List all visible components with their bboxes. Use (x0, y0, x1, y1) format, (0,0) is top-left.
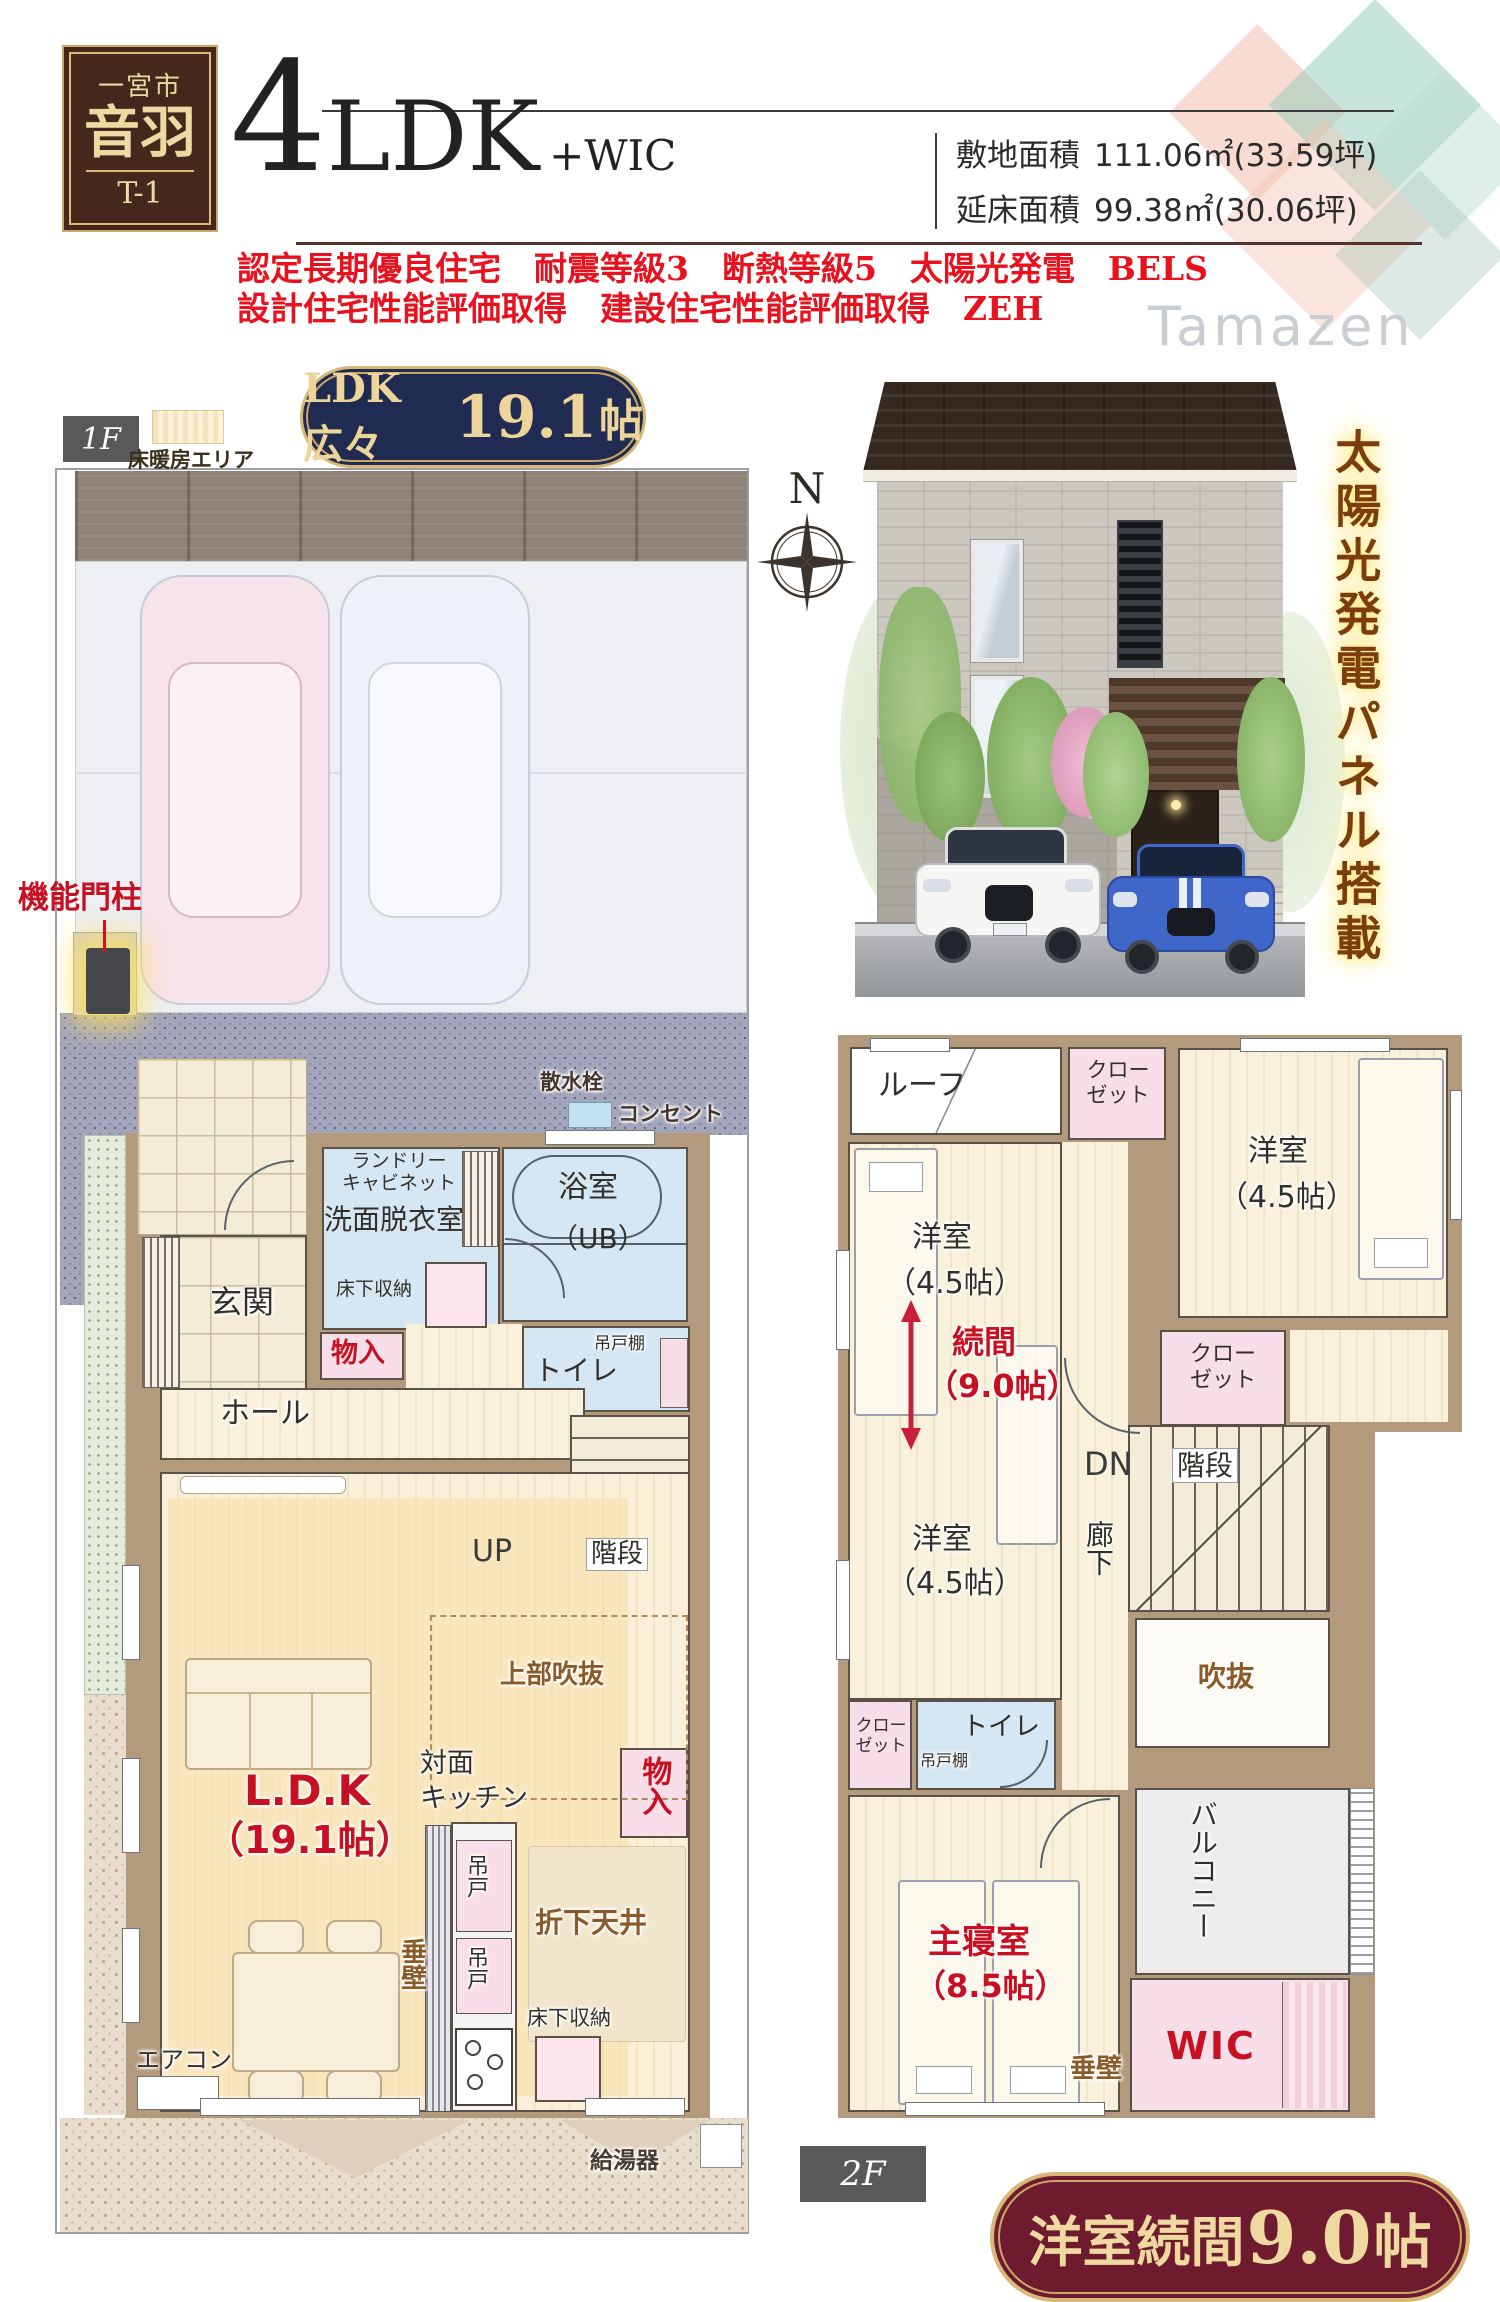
bed-pillow (1374, 1238, 1428, 1268)
plan-rest: LDK (327, 89, 539, 185)
hanging-door-label: 吊戸 (462, 1854, 488, 1898)
features-line2: 設計住宅性能評価取得 建設住宅性能評価取得 ZEH (237, 290, 1043, 329)
window-mark (836, 1560, 850, 1660)
dining-chair (326, 1920, 382, 1954)
garden-tree (1083, 712, 1149, 837)
location-badge: 一宮市 音羽 T-1 (62, 45, 218, 232)
window-left-upper (971, 540, 1023, 662)
laundry-cabinet-unit (462, 1151, 498, 1247)
exterior-render (855, 382, 1305, 997)
window-mark (1450, 1090, 1462, 1220)
ldk-size-label: （19.1帖） (206, 1818, 414, 1863)
gate-post (86, 948, 130, 1014)
roof-label: ルーフ (878, 1068, 966, 1103)
bedroom-ne-alcove (1290, 1330, 1448, 1422)
balcony-2f (1135, 1788, 1350, 1975)
compass-rose-icon (757, 512, 857, 612)
car-blue-hatchback (1107, 844, 1275, 976)
floor-area-row: 延床面積 99.38㎡(30.06坪) (956, 185, 1377, 230)
laundry-cabinet-label: ランドリー キャビネット (338, 1150, 460, 1195)
window-mark (122, 1758, 140, 1853)
water-heater-unit (700, 2124, 742, 2168)
stove (455, 2028, 513, 2106)
floor-heating-swatch (152, 410, 224, 444)
ldk-badge-unit: 帖 (599, 385, 643, 449)
bed-pillow (869, 1162, 923, 1192)
house-roof (863, 382, 1297, 472)
toilet-2f-label: トイレ (962, 1712, 1040, 1743)
stairs-1f-label: 階段 (586, 1538, 648, 1571)
window-mark (122, 1928, 140, 2023)
bath-ub-label: （UB） (550, 1222, 646, 1255)
plan-number: 4 (230, 42, 327, 194)
toilet-2f-shelf-label: 吊戸棚 (920, 1752, 968, 1771)
window-mark (870, 1038, 950, 1052)
site-area-row: 敷地面積 111.06㎡(33.59坪) (956, 130, 1377, 175)
area-divider (935, 133, 937, 229)
location-unit: T-1 (117, 176, 162, 211)
location-city: 一宮市 (98, 66, 182, 103)
zokuma-badge-prefix: 洋室続間 (1028, 2198, 1244, 2277)
car-outline-blue (340, 575, 530, 1005)
window-mark (200, 2098, 420, 2116)
outlet-swatch (568, 1102, 612, 1128)
wic-hanger-stripes (1282, 1982, 1346, 2108)
dining-chair (248, 1920, 304, 1954)
suv-headlight (923, 879, 951, 892)
slat-window (1117, 520, 1163, 668)
bed-pillow (1010, 2066, 1066, 2094)
sofa (185, 1658, 372, 1770)
toilet-hanging-shelf-label: 吊戸棚 (594, 1334, 645, 1354)
void-2f-label: 吹抜 (1198, 1660, 1254, 1693)
window-mark (585, 2098, 685, 2116)
window-mark (1240, 1038, 1390, 1052)
plan-suffix: +WIC (549, 135, 676, 177)
up-label: UP (472, 1534, 512, 1569)
underfloor-storage2-hatch (535, 2036, 601, 2102)
suv-wheel (1045, 927, 1081, 963)
suv-grill (985, 885, 1033, 921)
gate-post-leader (103, 920, 106, 952)
outlet-label: コンセント (618, 1102, 723, 1127)
ldk-label: L.D.K (244, 1766, 370, 1816)
floor-heating-label: 床暖房エリア (128, 448, 254, 473)
storage-1f-label: 物入 (331, 1338, 385, 1370)
zokuma-badge-value: 9.0 (1246, 2195, 1371, 2280)
bedroom-w-size: （4.5帖） (886, 1266, 1024, 1301)
compass-north-label: N (752, 468, 862, 510)
sofa-seat-line (249, 1692, 251, 1770)
storage2-1f-label: 物入 (636, 1756, 671, 1816)
bed (1358, 1058, 1444, 1280)
aircon-label: エアコン (136, 2046, 232, 2074)
stove-burner (465, 2040, 481, 2056)
underfloor-storage2-label: 床下収納 (527, 2006, 611, 2031)
void-above-label: 上部吹抜 (500, 1660, 604, 1691)
stairs-2f-label: 階段 (1172, 1448, 1238, 1483)
underfloor-storage-label: 床下収納 (336, 1278, 412, 1300)
side-ground-strip (84, 1695, 126, 2115)
closet-label: クロー ゼット (1180, 1342, 1266, 1394)
zokuma-badge-unit: 帖 (1374, 2195, 1432, 2279)
window-mark (905, 2102, 1105, 2116)
window-mark (122, 1565, 140, 1660)
brand-logo-text: Tamazen (1148, 295, 1415, 359)
wic-label: WIC (1166, 2024, 1256, 2069)
kitchen-label: 対面 キッチン (420, 1746, 528, 1816)
site-area-value: 111.06㎡(33.59坪) (1094, 130, 1377, 175)
compass: N (752, 468, 862, 623)
tarekabe-2f-label: 垂壁 (1070, 2054, 1122, 2085)
dn-label: DN (1084, 1446, 1133, 1484)
features-line1: 認定長期優良住宅 耐震等級3 断熱等級5 太陽光発電 BELS (237, 250, 1208, 289)
garden-tree (915, 712, 985, 842)
hall-label: ホール (220, 1396, 310, 1431)
location-badge-inner: 一宮市 音羽 T-1 (69, 52, 211, 225)
hatch-headlight (1245, 892, 1269, 907)
washroom-label: 洗面脱衣室 (324, 1203, 464, 1236)
floor-tag-2f-text: 2F (840, 2154, 885, 2194)
shoe-cabinet (142, 1237, 180, 1388)
bedroom-ne-size: （4.5帖） (1218, 1180, 1356, 1215)
underfloor-storage-hatch (425, 1262, 487, 1328)
hallway-label: 廊下 (1082, 1520, 1115, 1576)
car-outline-pink (140, 575, 330, 1005)
garden-tree (1237, 677, 1305, 842)
sofa-seat-line (311, 1692, 313, 1770)
kitchen-counter-front (425, 1825, 451, 2112)
hanging-door-label: 吊戸 (462, 1946, 488, 1990)
planting-strip (84, 1135, 126, 1695)
floor-area-value: 99.38㎡(30.06坪) (1094, 185, 1358, 230)
bedroom-sw-label: 洋室 (912, 1522, 972, 1557)
zokuma-size: （9.0帖） (926, 1368, 1079, 1406)
badge-divider (86, 170, 194, 172)
hatch-wheel (1225, 940, 1259, 974)
dining-table (232, 1952, 400, 2072)
suv-headlight (1065, 879, 1093, 892)
stove-burner (487, 2054, 503, 2070)
site-area-label: 敷地面積 (956, 130, 1080, 175)
door-light (1171, 800, 1181, 810)
hatch-grill (1167, 908, 1215, 936)
closet-label: クロー ゼット (852, 1716, 910, 1756)
floor-tag-2f: 2F (800, 2146, 926, 2202)
ldk-badge-prefix: LDK広々 (303, 365, 454, 470)
solar-caption: 太陽光発電パネル搭載 (1328, 428, 1382, 1028)
car-outline-roof (368, 662, 502, 918)
master-label: 主寝室 (928, 1922, 1030, 1962)
water-heater-label: 給湯器 (590, 2148, 659, 2175)
step-triangle (240, 2120, 470, 2178)
ldk-badge-value: 19.1 (456, 383, 597, 451)
window-mark (545, 1130, 655, 1145)
house-fascia (863, 470, 1297, 482)
dropped-ceiling-label: 折下天井 (535, 1906, 647, 1939)
area-info: 敷地面積 111.06㎡(33.59坪) 延床面積 99.38㎡(30.06坪) (956, 130, 1377, 230)
zokuma-label: 続間 (952, 1324, 1016, 1362)
toilet-1f-label: トイレ (534, 1354, 618, 1387)
closet-label: クロー ゼット (1078, 1058, 1158, 1108)
genkan-label: 玄関 (210, 1284, 274, 1322)
sprinkler-label: 散水栓 (540, 1070, 603, 1095)
floor-area-label: 延床面積 (956, 185, 1080, 230)
bedroom-sw-size: （4.5帖） (886, 1566, 1024, 1601)
car-outline-roof (168, 662, 302, 918)
bedroom-w-label: 洋室 (912, 1220, 972, 1255)
gate-post-label: 機能門柱 (18, 880, 142, 917)
sofa-back-line (187, 1692, 370, 1694)
balcony-label: バルコニー (1186, 1800, 1219, 1940)
tarekabe-1f-label: 垂壁 (396, 1938, 427, 1990)
suv-wheel (935, 927, 971, 963)
ldk-badge: LDK広々 19.1 帖 (300, 366, 646, 468)
tv-board (180, 1476, 346, 1494)
hatch-headlight (1113, 892, 1137, 907)
fence-strip (75, 471, 747, 561)
bed-pillow (916, 2066, 972, 2094)
master-size: （8.5帖） (914, 1968, 1067, 2006)
floor-tag-1f-text: 1F (81, 422, 121, 457)
suv-plate (993, 923, 1027, 936)
features-rule (296, 242, 1422, 245)
toilet-shelf-hatch (660, 1338, 688, 1408)
bath-label: 浴室 (558, 1170, 618, 1205)
hatch-wheel (1125, 940, 1159, 974)
balcony-railing (1350, 1788, 1374, 1975)
plan-title: 4 LDK +WIC (230, 42, 676, 194)
stove-burner (467, 2074, 483, 2090)
bedroom-ne-label: 洋室 (1248, 1134, 1308, 1169)
window-mark (836, 1250, 850, 1350)
car-white-suv (915, 827, 1101, 963)
zokuma-badge: 洋室続間 9.0 帖 (990, 2172, 1470, 2302)
zokuma-arrow-icon (898, 1300, 924, 1450)
location-name: 音羽 (84, 103, 196, 165)
